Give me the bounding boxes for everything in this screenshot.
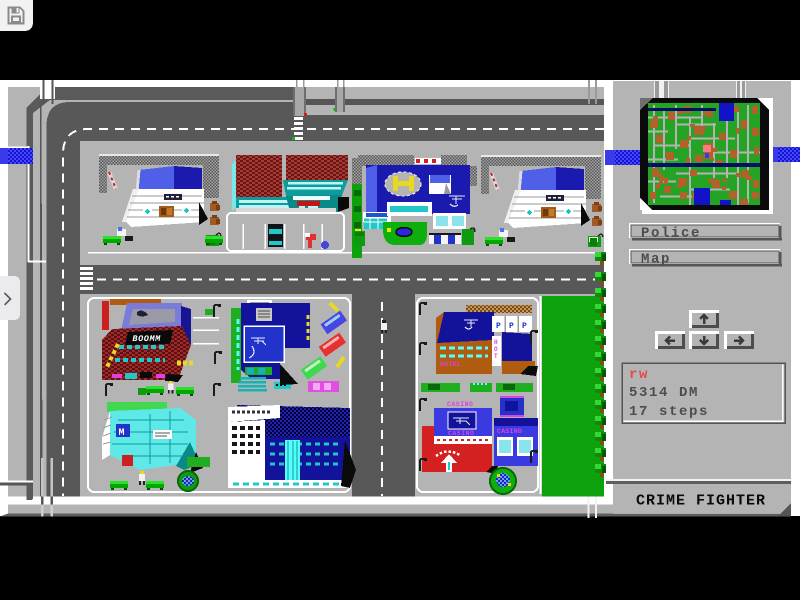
svg-text:Police: Police bbox=[641, 226, 701, 242]
svg-text:CRIME FIGHTER: CRIME FIGHTER bbox=[636, 493, 766, 510]
svg-text:T: T bbox=[494, 353, 498, 360]
svg-text:M: M bbox=[119, 428, 125, 439]
svg-text:CASINO: CASINO bbox=[447, 401, 473, 408]
svg-text:17 steps: 17 steps bbox=[629, 404, 709, 420]
svg-text:P: P bbox=[509, 322, 514, 331]
svg-text:P: P bbox=[496, 322, 501, 331]
svg-text:BOOMM: BOOMM bbox=[131, 334, 161, 344]
svg-text:CASINO: CASINO bbox=[448, 430, 474, 437]
svg-text:HOTEL: HOTEL bbox=[440, 361, 461, 368]
svg-text:CASINO: CASINO bbox=[497, 428, 522, 435]
svg-text:H: H bbox=[494, 339, 498, 346]
svg-text:rw: rw bbox=[629, 367, 649, 383]
svg-text:O: O bbox=[494, 346, 498, 353]
svg-text:5314 DM: 5314 DM bbox=[629, 385, 699, 401]
svg-text:Map: Map bbox=[641, 252, 671, 268]
svg-text:P: P bbox=[522, 322, 527, 331]
